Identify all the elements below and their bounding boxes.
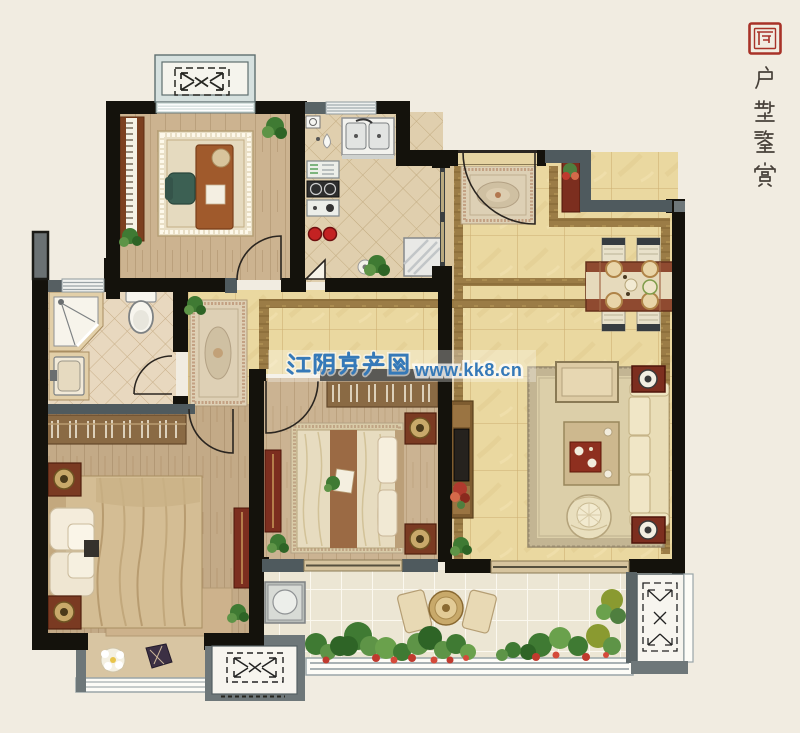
svg-text:www.kk8.cn: www.kk8.cn — [414, 360, 522, 380]
